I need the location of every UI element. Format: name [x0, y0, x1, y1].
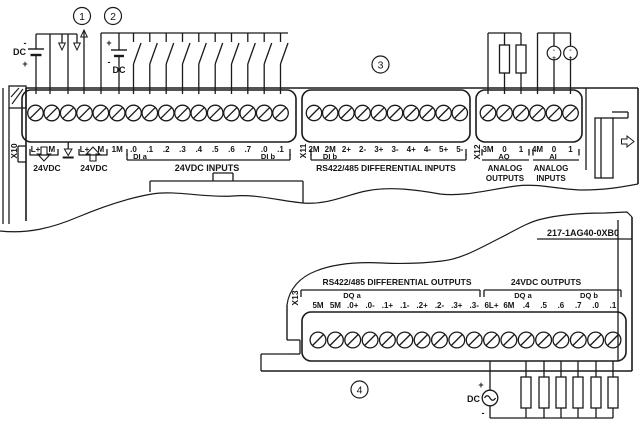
caption-analog-outputs-2: OUTPUTS [486, 174, 525, 183]
resistor-icon [500, 45, 510, 73]
switch-icon [281, 33, 289, 94]
screw-slot [438, 108, 448, 118]
dc-source-wave [485, 396, 496, 401]
group-label-dq-a2: DQ a [514, 291, 532, 300]
terminal-label: 5+ [439, 145, 448, 154]
dc-source-2-plus: + [106, 38, 111, 48]
switch-icon [215, 33, 223, 94]
terminal-label: 3M [482, 145, 493, 154]
callout-2: 2 [105, 8, 122, 25]
screw-slot [532, 108, 543, 119]
terminal-label: 4- [424, 145, 431, 154]
terminal-strip-x11: 2M2M2+2-3+3-4+4-5+5- [302, 90, 470, 154]
screw-slot [556, 335, 567, 346]
terminal-label: 2- [359, 145, 366, 154]
screw-slot [357, 108, 367, 118]
resistor-icon [521, 377, 531, 408]
switch-icon [199, 33, 207, 94]
dc-source-2-label: DC [113, 65, 126, 75]
resistor-icon [573, 377, 583, 408]
ai-source-2-plus: + [569, 55, 573, 62]
terminal-label: .3- [470, 301, 480, 310]
down-arrow-icon [74, 43, 81, 50]
screw-slot [30, 108, 41, 119]
dc-source-3-minus: - [482, 408, 485, 418]
terminal-label: 3+ [374, 145, 383, 154]
switch-blade [232, 43, 240, 64]
screw-slot [499, 108, 510, 119]
connector-id-x13: X13 [290, 290, 300, 305]
switch-blade [183, 43, 191, 64]
resistor-icon [539, 377, 549, 408]
screw-slot [417, 335, 428, 346]
screw-slot [330, 335, 341, 346]
terminal-label: .4 [195, 145, 202, 154]
screw-slot [504, 335, 515, 346]
screw-slot [590, 335, 601, 346]
screw-slot [79, 108, 90, 119]
switch-icon [183, 33, 191, 94]
terminal-label: .2 [163, 145, 170, 154]
screw-slot [406, 108, 416, 118]
caption-analog-inputs-1: ANALOG [534, 164, 569, 173]
screw-slot [608, 335, 619, 346]
screw-slot [486, 335, 497, 346]
switch-blade [166, 43, 174, 64]
switch-icon [150, 33, 158, 94]
caption-analog-inputs-2: INPUTS [536, 174, 566, 183]
terminal-label: 1 [568, 145, 573, 154]
callout-3: 3 [372, 56, 389, 73]
terminal-label: .7 [244, 145, 251, 154]
switch-icon [232, 33, 240, 94]
module-outlines [0, 86, 638, 371]
screw-slot [313, 335, 324, 346]
screw-slot [112, 108, 123, 119]
terminal-strips: L+ML+M1M.0.1.2.3.4.5.6.7.0.12M2M2+2-3+3-… [22, 90, 626, 361]
screw-slot [469, 335, 480, 346]
caption-rs422-inputs: RS422/485 DIFFERENTIAL INPUTS [316, 163, 456, 173]
screw-slot [210, 108, 221, 119]
screw-slot [144, 108, 155, 119]
right-arrow-icon [622, 136, 635, 147]
screw-slot [177, 108, 188, 119]
terminal-label: 3- [391, 145, 398, 154]
terminal-label: 1M [112, 145, 123, 154]
terminal-label: .3 [179, 145, 186, 154]
din-rail-clip [595, 118, 613, 178]
terminal-label: .1 [146, 145, 153, 154]
switch-icon [134, 33, 142, 94]
resistor-icon [516, 45, 526, 73]
terminal-strip-x13: 5M5M.0+.0-.1+.1-.2+.2-.3+.3-6L+6M.4.5.6.… [302, 301, 626, 361]
ai-source-1-plus: + [552, 55, 556, 62]
switch-blade [264, 43, 272, 64]
terminal-label: .2- [435, 301, 445, 310]
screw-slot [390, 108, 400, 118]
part-number: 217-1AG40-0XB0 [547, 228, 619, 238]
dc-source-2-minus: - [108, 57, 111, 67]
callout-2-number: 2 [110, 11, 116, 23]
down-arrow-icon [59, 43, 66, 50]
caption-analog-outputs-1: ANALOG [488, 164, 523, 173]
dc-source-3-plus: + [478, 380, 483, 390]
terminal-label: 6M [503, 301, 514, 310]
ai-source-2-minus: - [569, 47, 571, 54]
terminal-strip-x10: L+ML+M1M.0.1.2.3.4.5.6.7.0.1 [22, 90, 296, 154]
switch-blade [215, 43, 223, 64]
terminal-label: .6 [228, 145, 235, 154]
connector-id-x11: X11 [298, 143, 308, 158]
terminal-label: 2M [308, 145, 319, 154]
screw-slot [434, 335, 445, 346]
heading-rs422-outputs: RS422/485 DIFFERENTIAL OUTPUTS [322, 277, 471, 287]
resistor-icon [556, 377, 566, 408]
dc-source-3-label: DC [467, 394, 480, 404]
screw-slot [128, 108, 139, 119]
terminal-label: .1+ [382, 301, 394, 310]
ai-source-1-minus: - [553, 47, 555, 54]
switch-blade [248, 43, 256, 64]
switch-icon [248, 33, 256, 94]
screw-slot [374, 108, 384, 118]
screw-slot [422, 108, 432, 118]
group-label-dq-a1: DQ a [343, 291, 361, 300]
terminal-label: .4 [523, 301, 530, 310]
terminal-label: .6 [558, 301, 565, 310]
screw-slot [161, 108, 172, 119]
group-label-dq-b: DQ b [580, 291, 598, 300]
earth-ground-icon [63, 142, 74, 158]
screw-slot [63, 108, 74, 119]
dc-source-1-label: DC [13, 47, 26, 57]
connector-id-x10: X10 [9, 143, 19, 158]
screw-slot [382, 335, 393, 346]
caption-24vdc-supply: 24VDC [33, 163, 60, 173]
terminal-label: .0+ [347, 301, 359, 310]
screw-slot [193, 108, 204, 119]
screw-slot [226, 108, 237, 119]
terminal-label: .1 [610, 301, 617, 310]
connector-id-x12: X12 [472, 144, 482, 159]
screw-slot [573, 335, 584, 346]
screw-slot [399, 335, 410, 346]
dc-source-1-plus: + [22, 59, 27, 69]
callout-1-number: 1 [79, 11, 85, 23]
screw-slot [365, 335, 376, 346]
callout-4: 4 [351, 381, 368, 398]
callout-4-number: 4 [357, 384, 363, 396]
caption-24vdc-sensor: 24VDC [80, 163, 107, 173]
switch-blade [150, 43, 158, 64]
resistor-icon [591, 377, 601, 408]
screw-slot [565, 108, 576, 119]
screw-slot [549, 108, 560, 119]
screw-slot [46, 108, 57, 119]
screw-slot [451, 335, 462, 346]
terminal-label: 2+ [342, 145, 351, 154]
screw-slot [325, 108, 335, 118]
heading-24vdc-outputs: 24VDC OUTPUTS [511, 277, 582, 287]
switch-blade [199, 43, 207, 64]
screw-slot [538, 335, 549, 346]
terminal-label: M [48, 145, 55, 154]
terminal-label: .5 [540, 301, 547, 310]
terminal-label: 5M [312, 301, 323, 310]
terminal-label: .2+ [416, 301, 428, 310]
switch-icon [166, 33, 174, 94]
terminal-label: .1- [400, 301, 410, 310]
screw-slot [309, 108, 319, 118]
switch-blade [134, 43, 142, 64]
switch-icon [264, 33, 272, 94]
terminal-label: 5M [330, 301, 341, 310]
dc-source-1-minus: - [24, 38, 27, 48]
screw-slot [95, 108, 106, 119]
screw-slot [347, 335, 358, 346]
screw-slot [275, 108, 286, 119]
callout-3-number: 3 [378, 59, 384, 71]
screw-slot [259, 108, 270, 119]
terminal-label: .7 [575, 301, 582, 310]
screw-slot [483, 108, 494, 119]
screw-slot [242, 108, 253, 119]
torn-edge-upper [0, 184, 638, 232]
screw-slot [455, 108, 465, 118]
terminal-label: 4M [532, 145, 543, 154]
callout-1: 1 [74, 8, 91, 25]
screw-slot [341, 108, 351, 118]
terminal-label: .0 [592, 301, 599, 310]
terminal-label: .3+ [451, 301, 463, 310]
terminal-label: .5 [212, 145, 219, 154]
terminal-label: .0- [365, 301, 375, 310]
terminal-label: 1 [519, 145, 524, 154]
terminal-label: 4+ [407, 145, 416, 154]
terminal-label: .1 [277, 145, 284, 154]
labels: X10 X11 X12 X13 24VDC 24VDC 24VDC INPUTS… [9, 8, 634, 419]
terminal-strip-x12: 3M014M01 [476, 90, 582, 154]
caption-24vdc-inputs: 24VDC INPUTS [175, 163, 240, 173]
switch-blade [281, 43, 289, 64]
resistor-icon [608, 377, 618, 408]
screw-slot [516, 108, 527, 119]
terminal-label: L+ [31, 145, 41, 154]
terminal-strip-body [476, 90, 582, 142]
screw-slot [521, 335, 532, 346]
plc-wiring-diagram: L+ML+M1M.0.1.2.3.4.5.6.7.0.12M2M2+2-3+3-… [0, 0, 640, 424]
terminal-label: 5- [456, 145, 463, 154]
terminal-label: 6L+ [484, 301, 498, 310]
